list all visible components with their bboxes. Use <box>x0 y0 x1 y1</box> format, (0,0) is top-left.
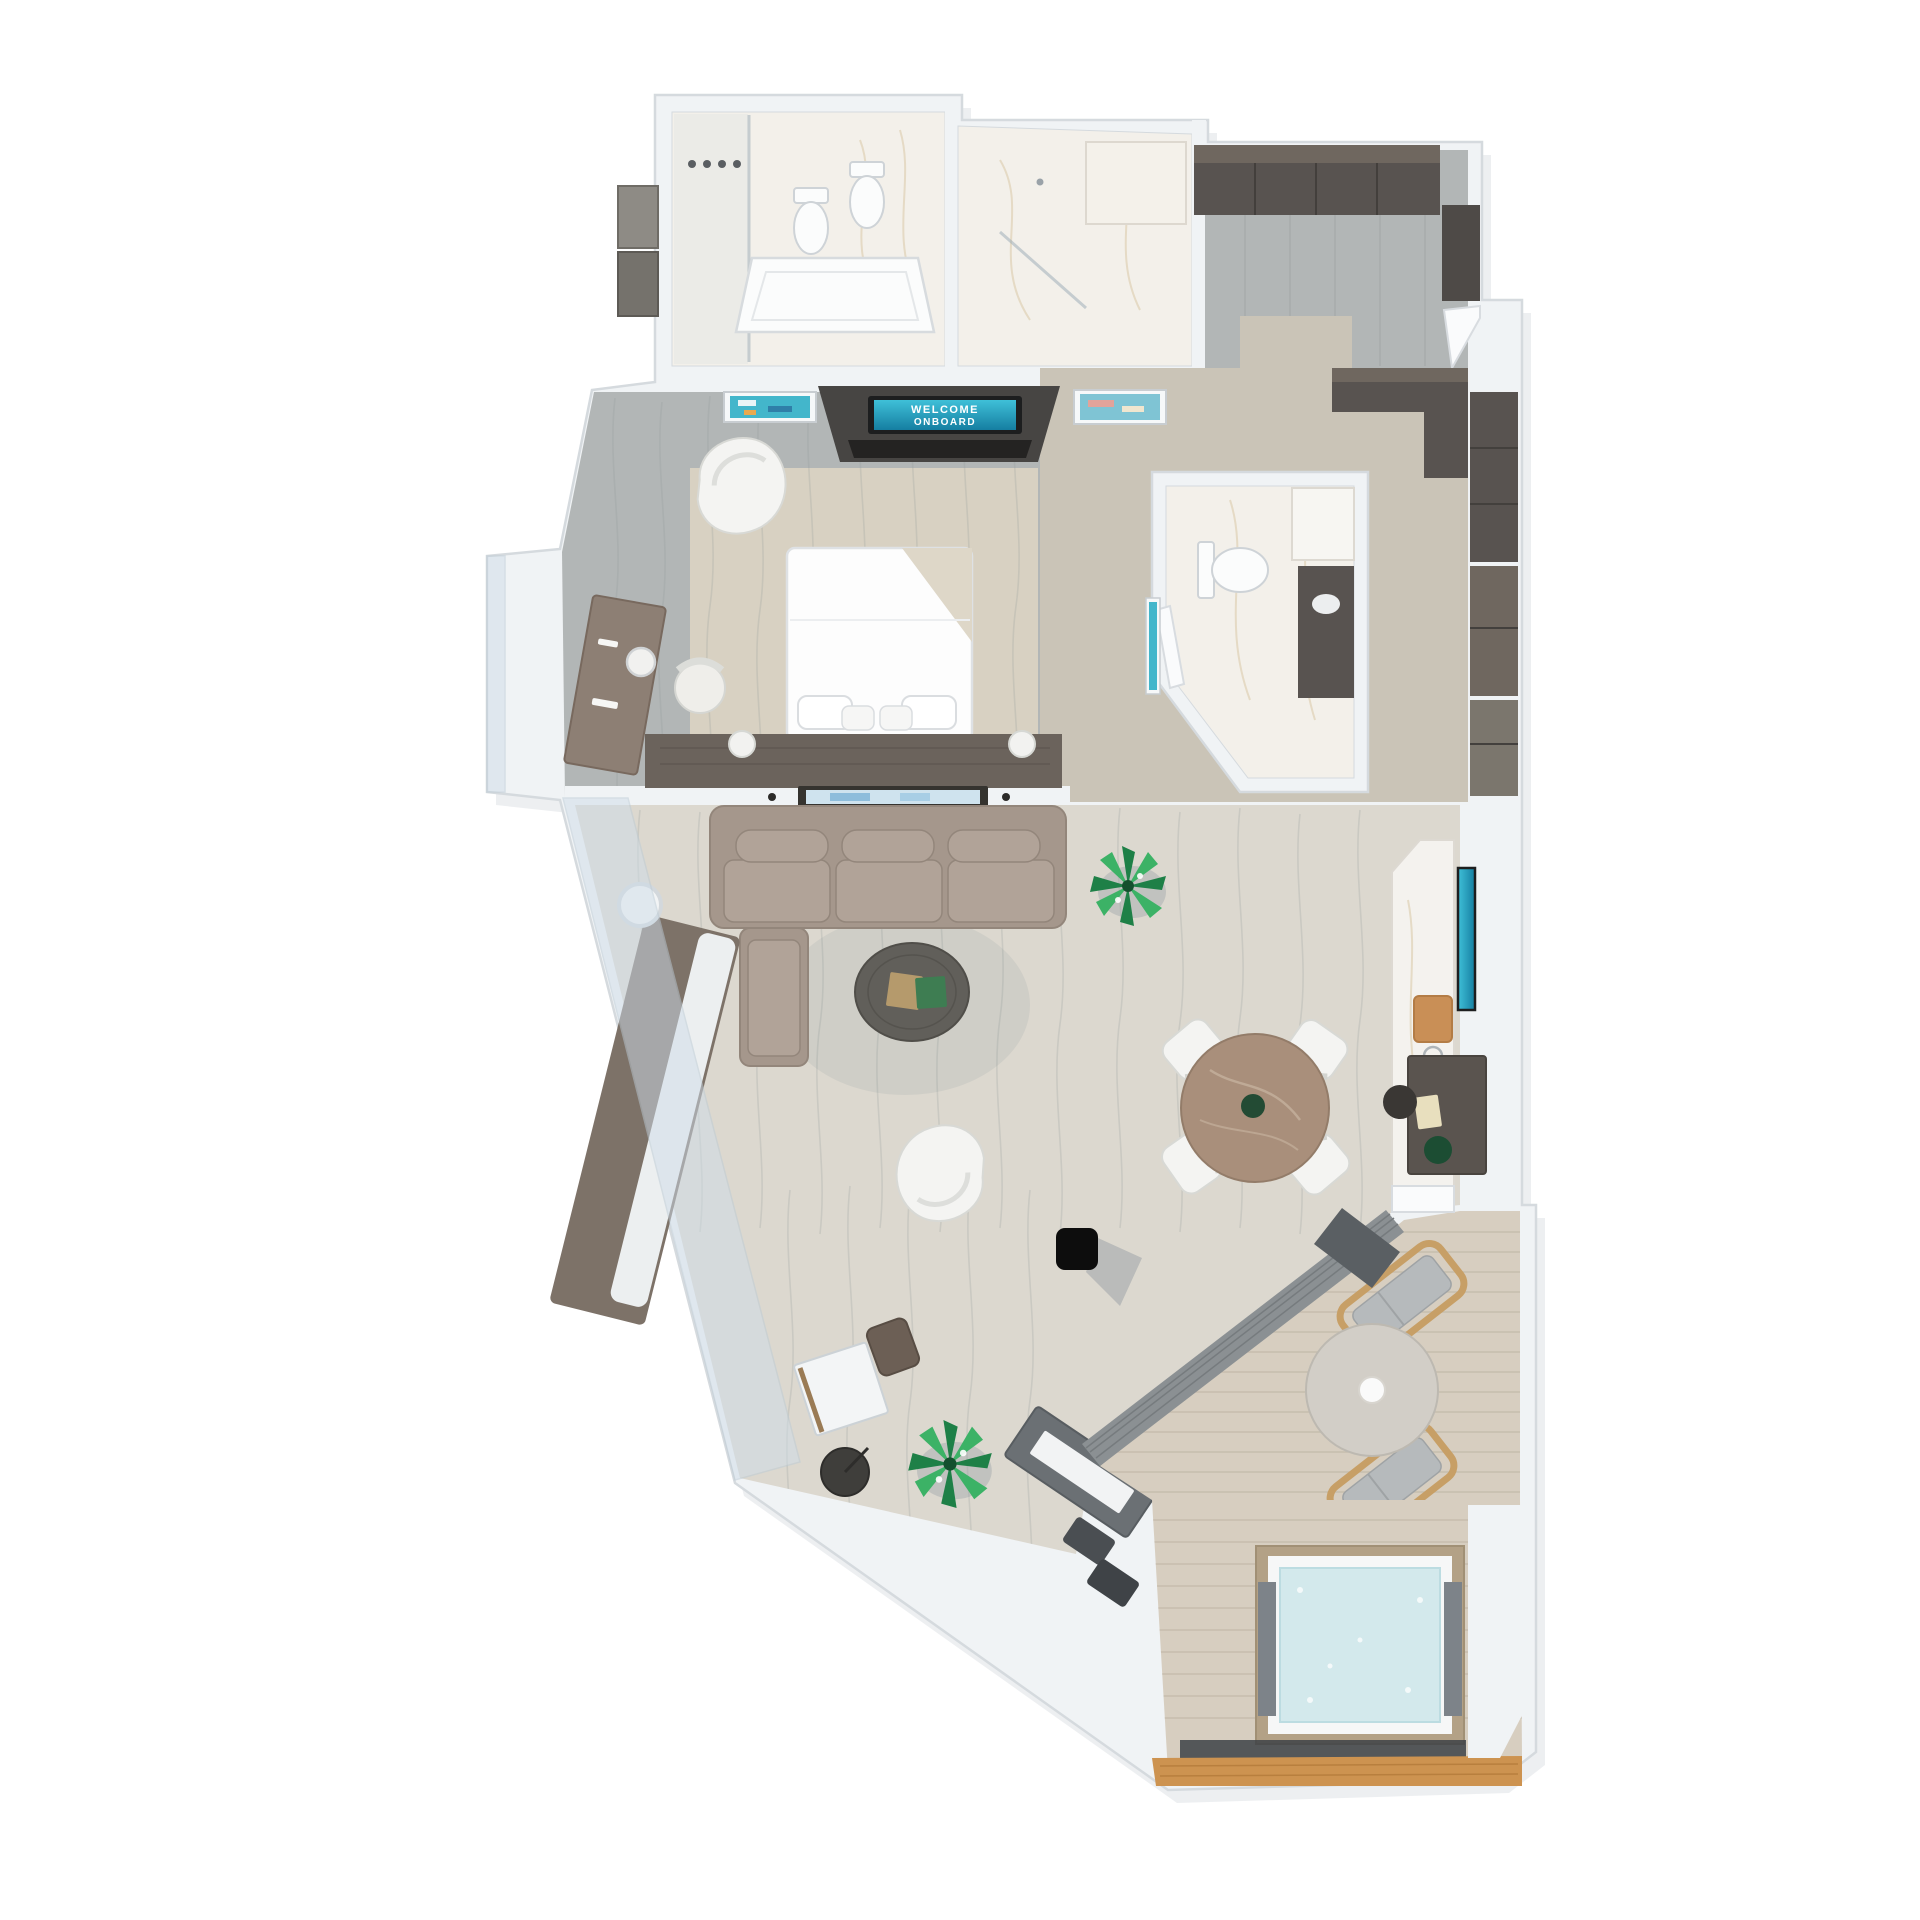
bar-tv <box>1458 868 1475 1010</box>
deck-edge-wood <box>1152 1756 1522 1786</box>
black-ottoman <box>1056 1228 1098 1270</box>
closet-shelving <box>1470 392 1518 796</box>
balcony-door <box>1392 1186 1454 1212</box>
hot-tub-deck <box>1140 1500 1530 1786</box>
hot-tub <box>1256 1546 1464 1744</box>
shower-bench <box>1086 142 1186 224</box>
back-pillow <box>948 830 1040 862</box>
toilet <box>794 188 828 254</box>
tv-welcome-line1: WELCOME <box>911 404 979 416</box>
walk-in-shower <box>958 126 1192 366</box>
bedroom-media-wall: WELCOME ONBOARD <box>818 386 1060 462</box>
coffee-table <box>855 943 969 1041</box>
wardrobe <box>1194 145 1440 215</box>
king-bed <box>787 548 972 740</box>
back-pillow <box>736 830 828 862</box>
tv-welcome-line2: ONBOARD <box>914 417 976 428</box>
artwork-left <box>724 392 816 422</box>
vanity-chair <box>675 661 725 713</box>
centerpiece <box>1241 1094 1265 1118</box>
back-pillow <box>842 830 934 862</box>
vanity-cabinets <box>618 186 658 316</box>
desk-plant <box>1424 1136 1452 1164</box>
guest-shower-tray <box>1292 488 1354 560</box>
tub-side-panel <box>1258 1582 1276 1716</box>
cutting-board <box>1414 996 1452 1042</box>
bay-window-glass <box>487 556 505 792</box>
seat-cushion <box>948 860 1054 922</box>
guest-vanity <box>1298 566 1354 698</box>
artwork-right <box>1074 390 1166 424</box>
desk-stool <box>1383 1085 1417 1119</box>
bathtub <box>736 258 934 332</box>
floor-plan-render: WELCOME ONBOARD <box>0 0 1920 1920</box>
nightstand-stool <box>1009 731 1035 757</box>
tub-side-panel <box>1444 1582 1462 1716</box>
entry-cabinet <box>1442 205 1480 301</box>
notepad <box>1414 1094 1442 1129</box>
shower-drain <box>1037 179 1044 186</box>
speaker-dot <box>1002 793 1010 801</box>
living-tv-wall <box>768 786 1010 808</box>
floor-plan-page: WELCOME ONBOARD <box>0 0 1920 1920</box>
speaker-dot <box>768 793 776 801</box>
hot-tub-water <box>1280 1568 1440 1722</box>
dining-area <box>1157 1015 1354 1200</box>
hall-artwork <box>1146 598 1160 694</box>
seat-cushion <box>836 860 942 922</box>
nightstand-stool <box>729 731 755 757</box>
book <box>915 976 947 1009</box>
balcony-table <box>1306 1324 1438 1456</box>
pillow-small <box>842 706 874 730</box>
seat-cushion <box>724 860 830 922</box>
headboard <box>645 734 1062 788</box>
bath-divider-wall <box>945 110 959 368</box>
bidet <box>850 162 884 228</box>
pillow-small <box>880 706 912 730</box>
entry-hall <box>1194 145 1480 368</box>
round-mirror <box>627 648 655 676</box>
entry-mat <box>1240 316 1352 368</box>
